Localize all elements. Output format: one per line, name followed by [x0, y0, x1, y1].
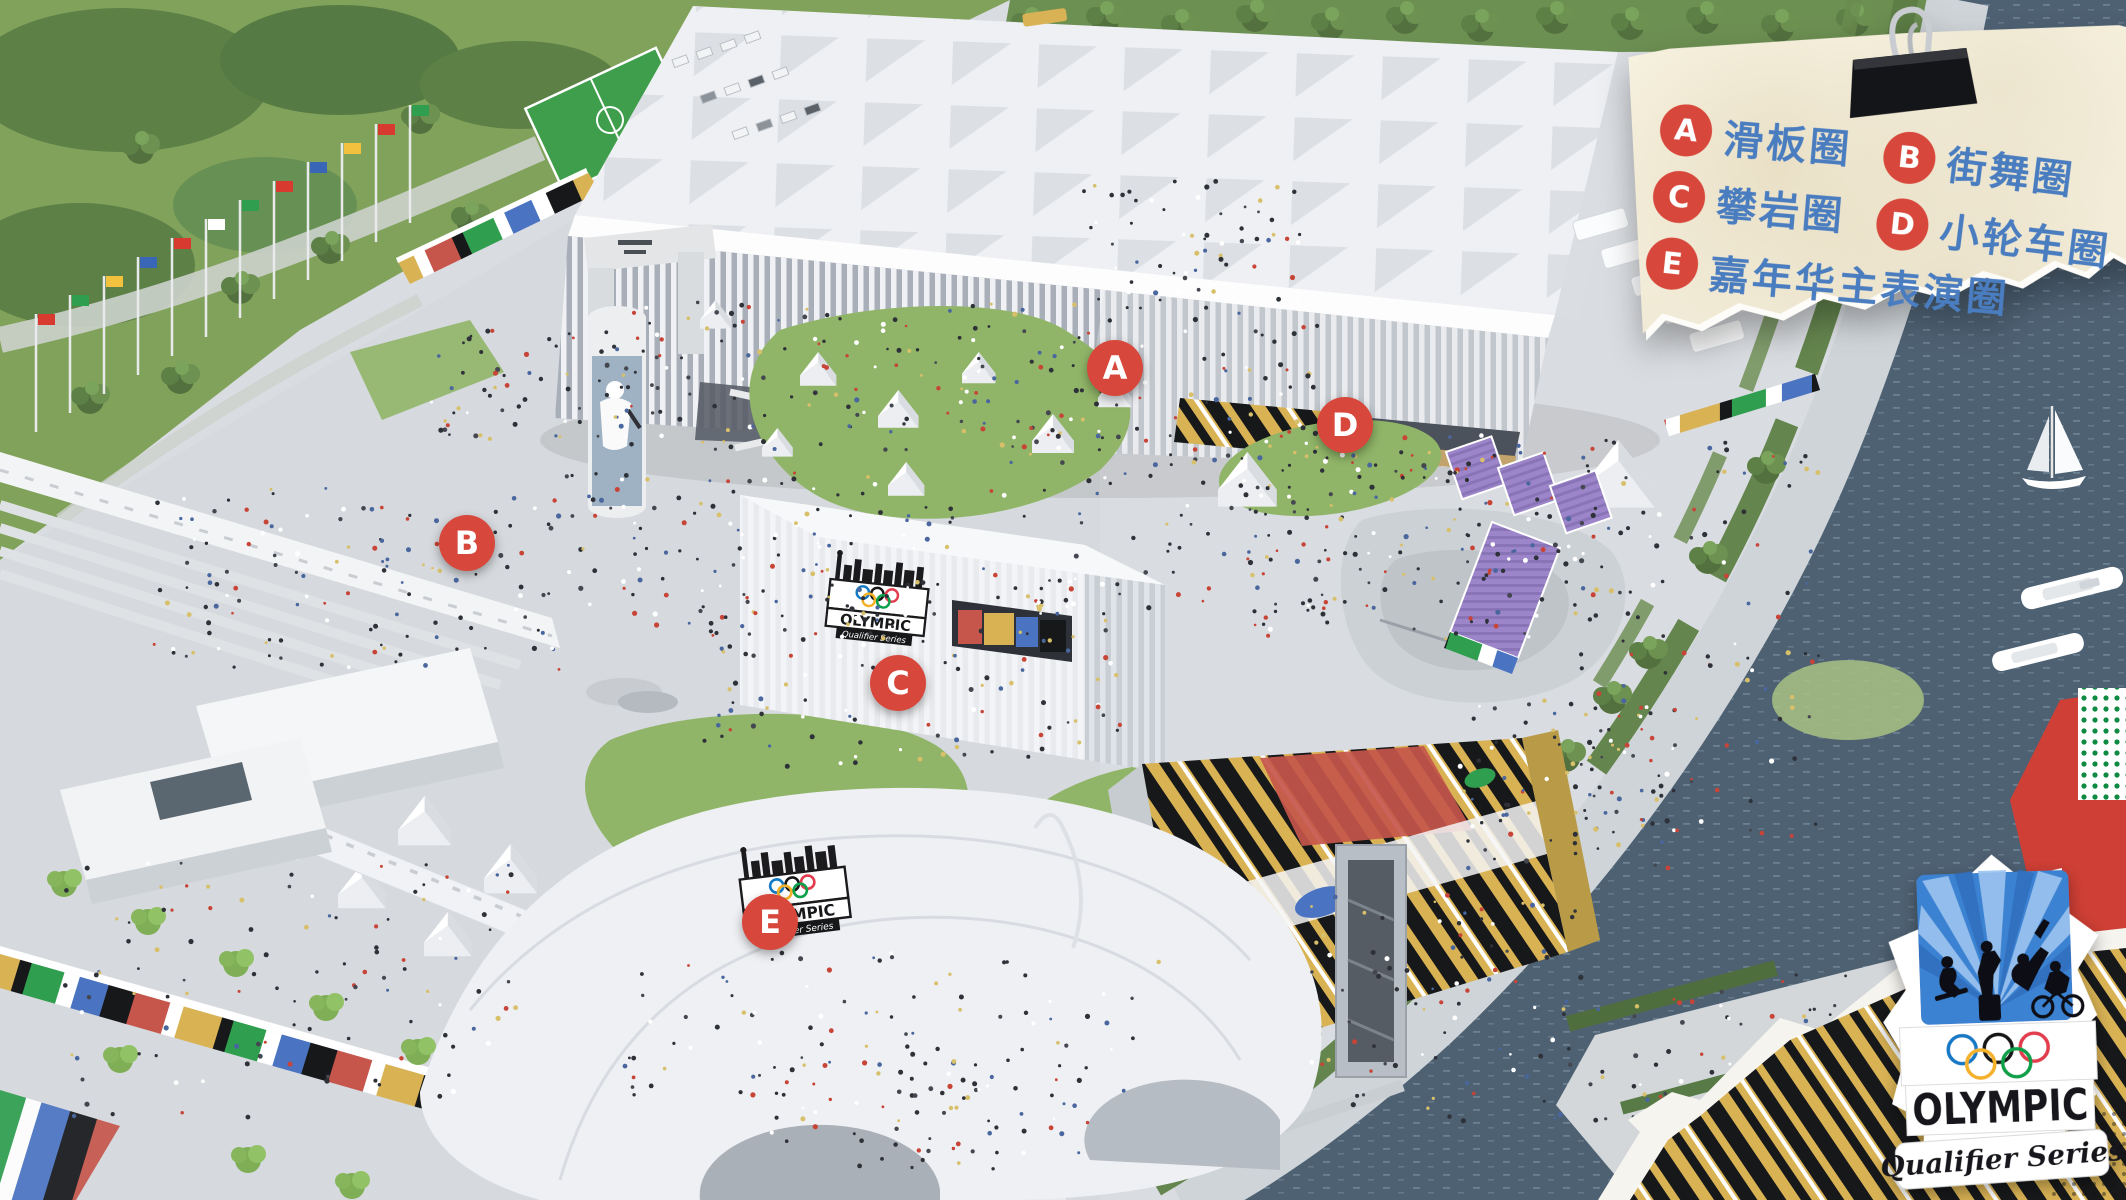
legend-badge-a: A [1657, 102, 1714, 159]
legend-label-a: 滑板圈 [1721, 107, 1854, 176]
legend-label-b: 街舞圈 [1944, 133, 2079, 206]
zone-marker-a: A [1087, 340, 1143, 396]
zone-marker-b: B [439, 515, 495, 571]
zone-marker-e: E [742, 894, 798, 950]
legend-badge-c: C [1650, 168, 1707, 225]
legend-badge-b: B [1881, 129, 1938, 186]
zone-marker-d: D [1317, 397, 1373, 453]
legend-note: A 滑板圈 B 街舞圈 C 攀岩圈 D 小轮车圈 E 嘉年华主表演圈 [1628, 21, 2126, 369]
oqs-logo-title: OLYMPIC [1911, 1079, 2089, 1136]
legend-badge-d: D [1874, 196, 1931, 253]
legend-label-c: 攀岩圈 [1714, 173, 1847, 242]
zone-marker-c: C [870, 655, 926, 711]
venue-map: OLYMPIC Qualifier Series [0, 0, 2126, 1200]
stadium [540, 6, 1745, 498]
binder-clip-icon [1832, 0, 1989, 133]
legend-badge-e: E [1643, 235, 1700, 292]
